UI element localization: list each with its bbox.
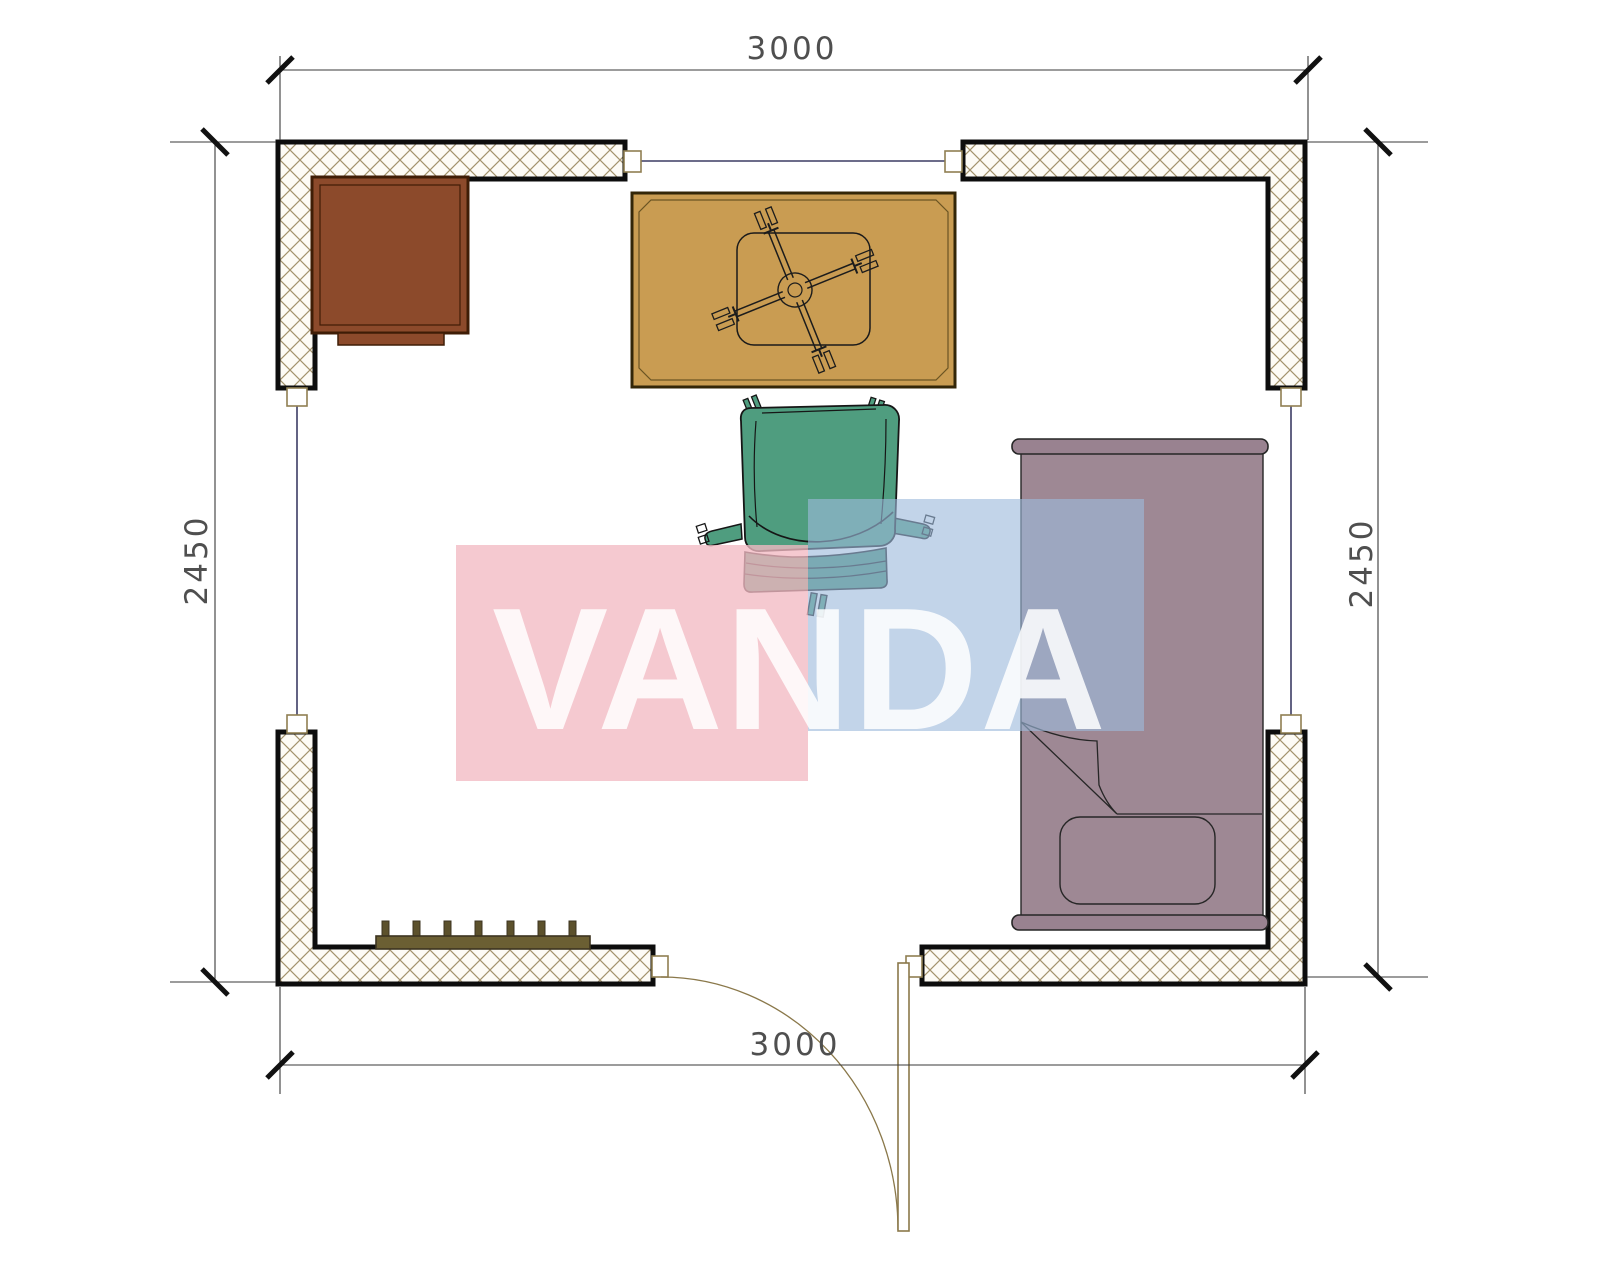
door-leaf: [898, 963, 909, 1231]
radiator-bar: [376, 936, 590, 949]
dimension-bottom-label: 3000: [695, 1028, 895, 1062]
door: [661, 963, 909, 1231]
bed-pillow: [1060, 817, 1215, 904]
watermark-text: VANDA: [440, 582, 1160, 756]
cap-right-lower: [1281, 715, 1301, 733]
floor-plan-page: 3000 3000 2450 2450 VANDA: [0, 0, 1600, 1280]
dimension-right-label: 2450: [1345, 463, 1379, 663]
door-jamb-left: [652, 956, 668, 977]
dimension-top-label: 3000: [692, 32, 892, 66]
cap-left-upper: [287, 388, 307, 406]
cap-left-lower: [287, 715, 307, 733]
door-swing-arc: [661, 977, 898, 1230]
radiator: [376, 921, 590, 949]
chair-armrest-left: [705, 524, 742, 546]
dimension-left-label: 2450: [180, 460, 214, 660]
cap-top-opening-left: [624, 151, 641, 172]
cap-top-opening-right: [945, 151, 962, 172]
bed-headboard: [1012, 439, 1268, 454]
cap-right-upper: [1281, 388, 1301, 406]
wall-top-right: [963, 142, 1305, 388]
cabinet: [312, 177, 468, 345]
desk: [632, 178, 955, 402]
bed-footboard: [1012, 915, 1268, 930]
